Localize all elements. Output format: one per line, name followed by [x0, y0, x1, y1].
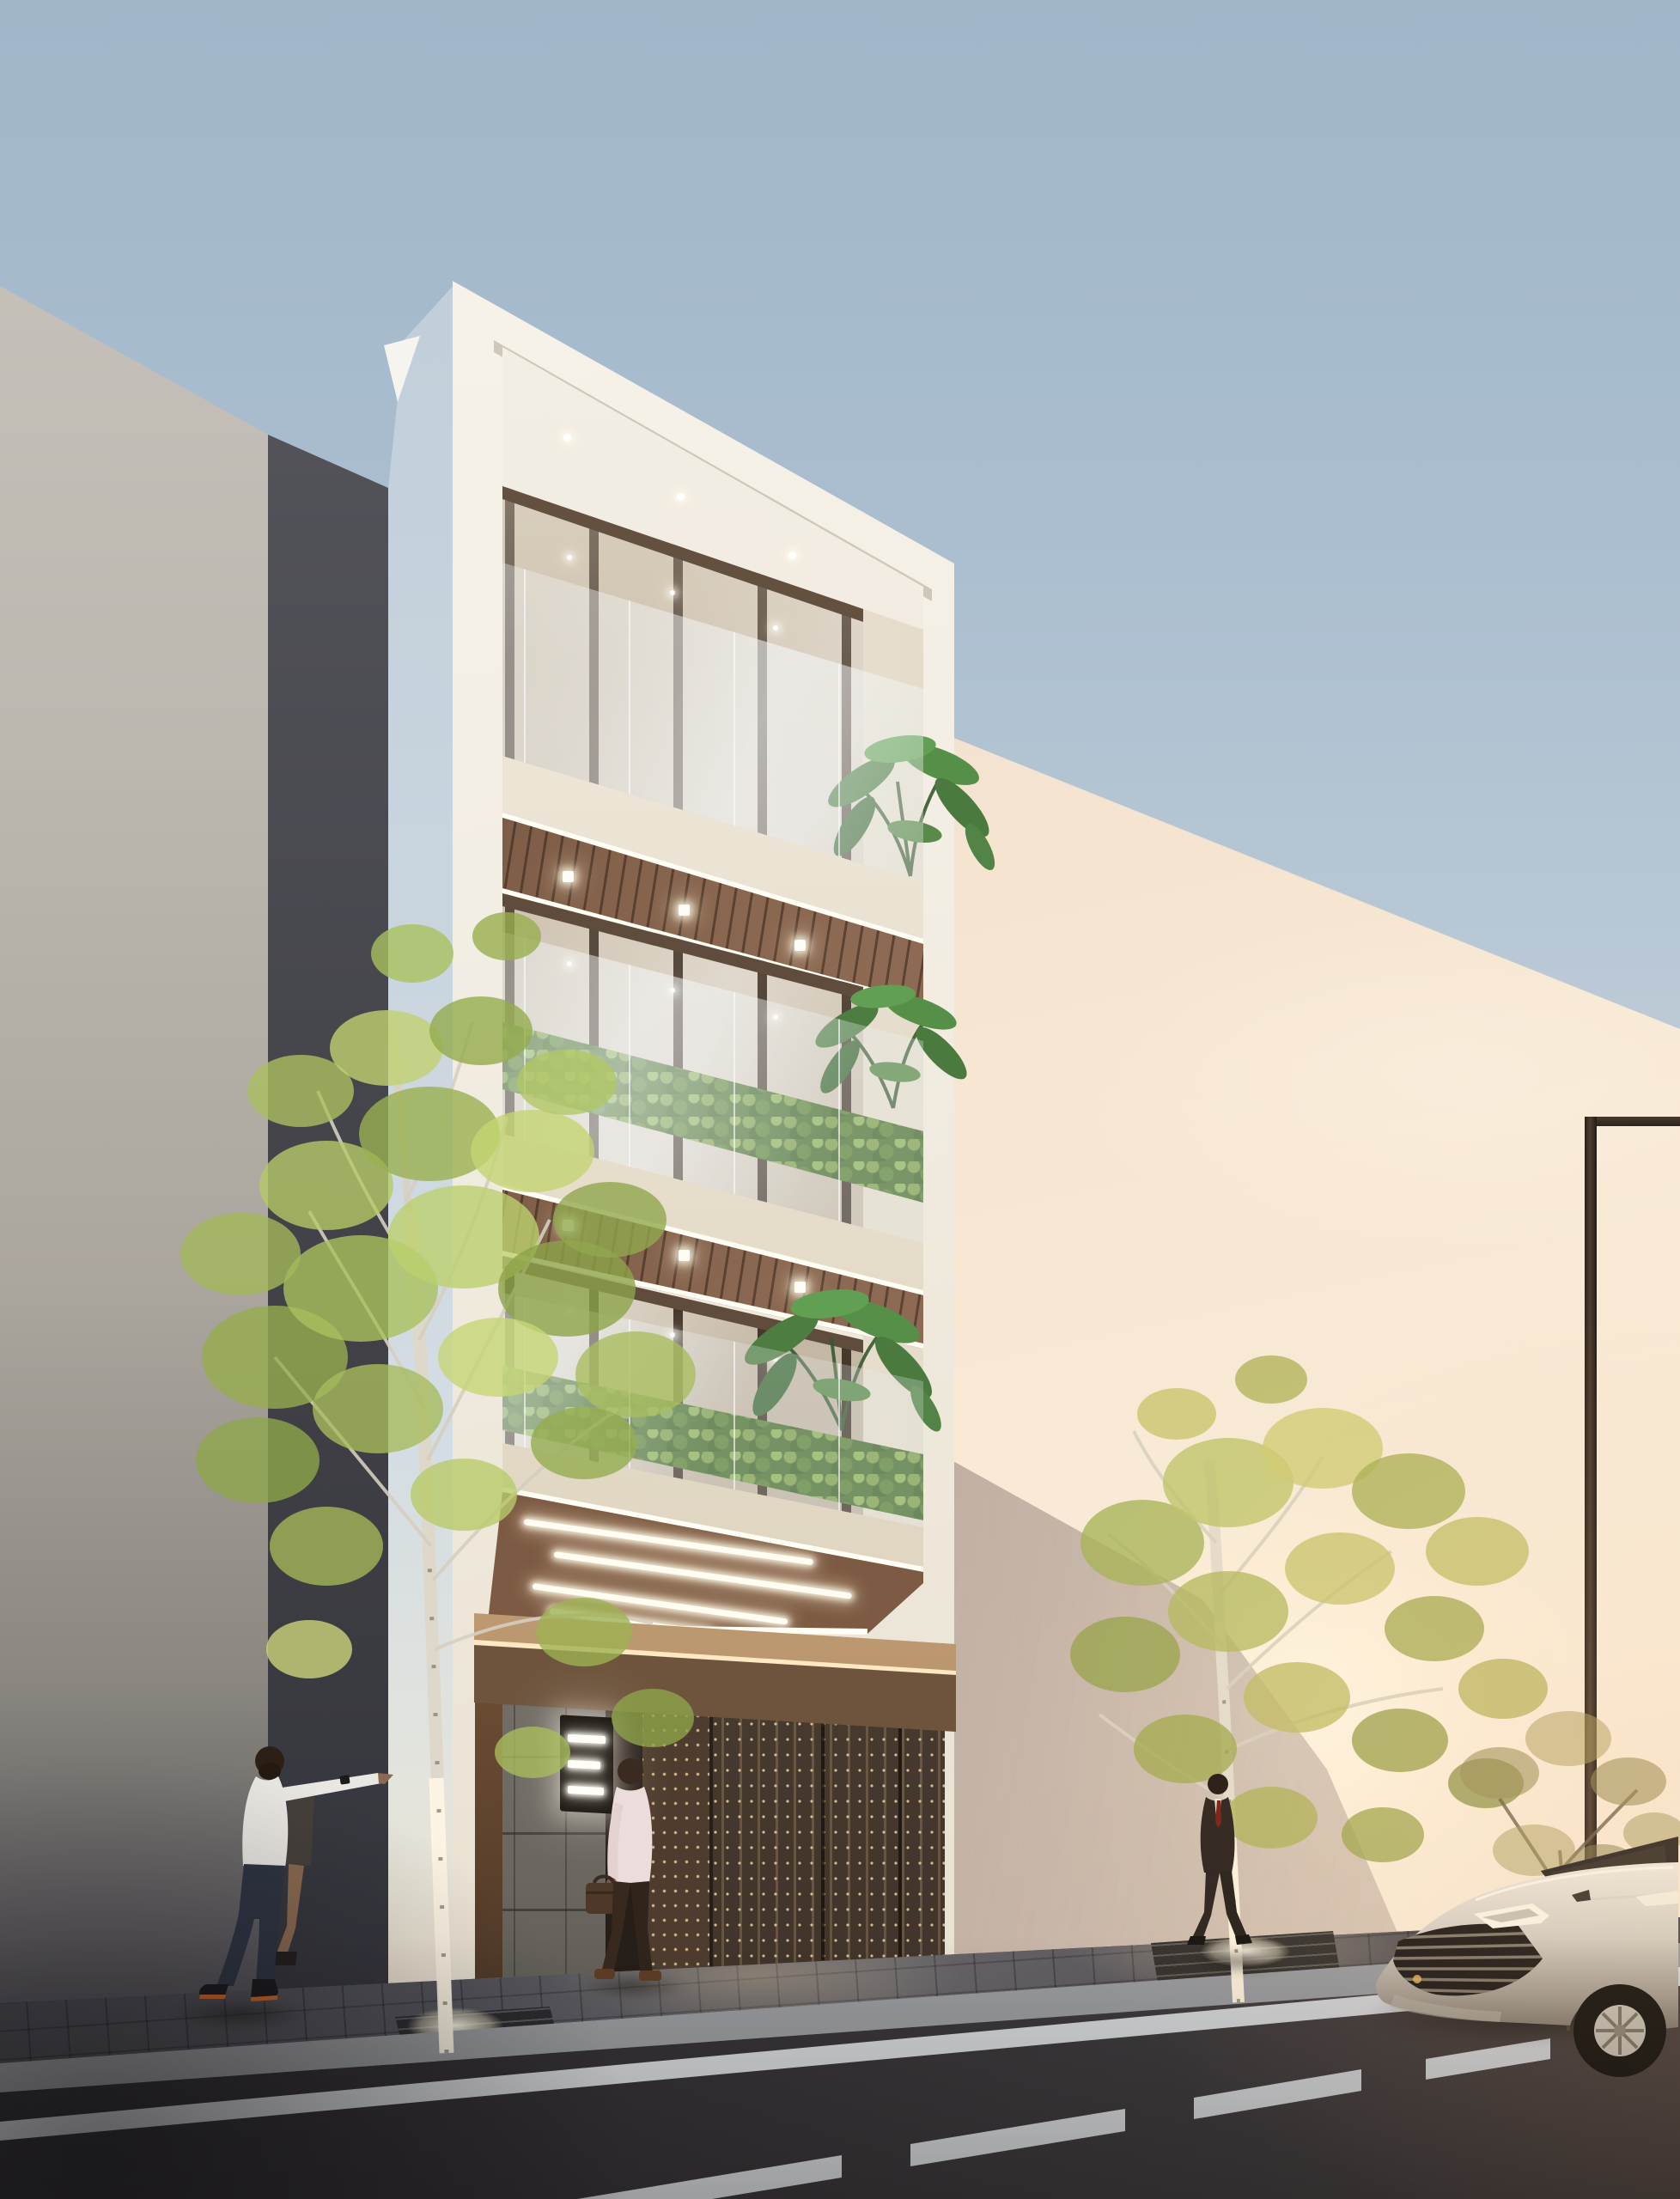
person-suit-man — [1182, 1771, 1268, 1969]
gate-seam — [898, 1726, 902, 1958]
ceiling-downlight — [788, 551, 796, 559]
gate-seam — [821, 1721, 825, 1960]
person-pointing-man — [160, 1735, 400, 2019]
ceiling-downlight — [563, 434, 571, 442]
car-sedan — [1373, 1811, 1680, 2103]
ceiling-downlight — [677, 493, 685, 501]
interior-downlight — [773, 625, 778, 630]
interior-downlight — [670, 590, 675, 595]
street-lamp-arm — [1585, 1117, 1680, 1126]
architectural-render — [0, 0, 1680, 2199]
person-bag-man — [570, 1752, 691, 2001]
interior-downlight — [567, 555, 572, 560]
